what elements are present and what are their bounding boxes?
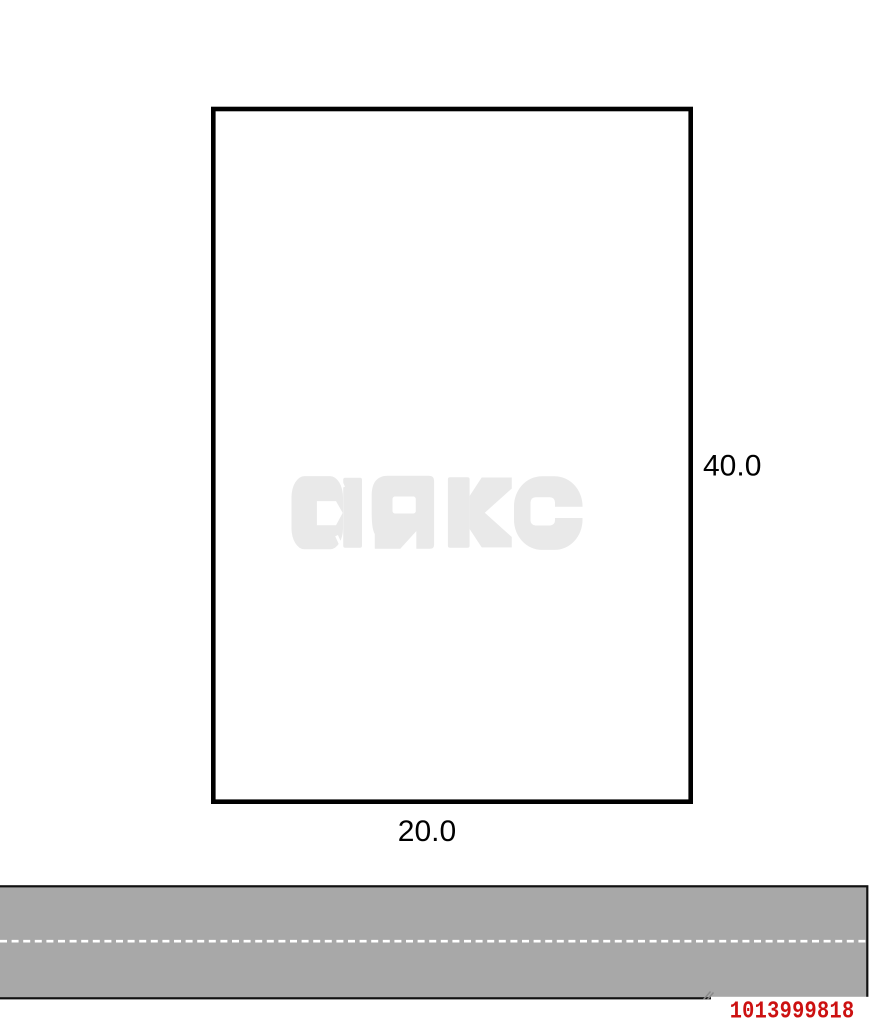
svg-text:20.0: 20.0 [398,815,456,848]
svg-text:1013999818: 1013999818 [730,998,855,1025]
svg-text:40.0: 40.0 [703,450,761,483]
